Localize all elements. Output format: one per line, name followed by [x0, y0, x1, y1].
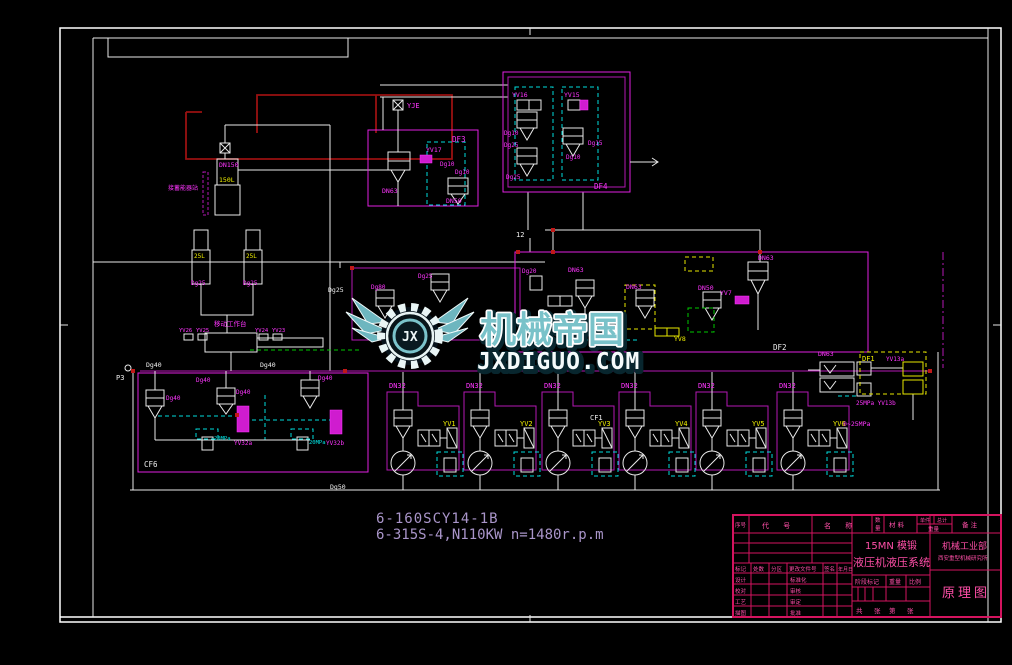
rev-mark-header: 标记 [735, 565, 747, 573]
dg50-label: Dg50 [330, 483, 346, 491]
pressure-range-label: 0~25MPa [843, 420, 870, 428]
yv24-label: YV24 [255, 328, 269, 334]
pump-unit-1: DN32 YV1 [387, 372, 463, 490]
equipment-notes: 6-160SCY14-1B 6-315S-4,N110KW n=1480r.p.… [376, 511, 604, 543]
cad-viewport[interactable]: DN150 150L 接蓄能器站 25L 25L Dg25 Dg25 12 Dg… [0, 0, 1012, 665]
p3-port-label: P3 [116, 374, 124, 382]
role-approve1: 审定 [790, 598, 802, 606]
pump-model-note: 6-160SCY14-1B [376, 511, 499, 527]
cylinder-a-label: 25L [194, 253, 205, 260]
accumulator-volume-label: 150L [219, 176, 235, 184]
dg40-line-label-a: Dg40 [146, 361, 162, 369]
yje-label: YJE [407, 102, 420, 110]
stage-weight: 重量 [889, 578, 901, 586]
df3-zone-label: DF3 [452, 135, 466, 144]
pump-unit-6: DN32 YV6 [777, 372, 853, 490]
yv26-label: YV26 [179, 328, 192, 334]
watermark-monogram: JX [402, 330, 418, 345]
df2-dn63a-label: DN63 [568, 266, 584, 274]
df2-dn63b-label: DN63 [626, 283, 642, 291]
yv13b-label: 25MPa YV13b [856, 400, 896, 407]
dg40-line-label-b: Dg40 [260, 361, 276, 369]
df4-yv15-label: YV15 [564, 91, 580, 99]
df3-yv17-label: YV17 [426, 146, 442, 154]
cad-canvas[interactable]: DN150 150L 接蓄能器站 25L 25L Dg25 Dg25 12 Dg… [0, 0, 1012, 665]
pump-unit-5: DN32 YV5 [696, 372, 772, 490]
pump3-dn32-label: DN32 [544, 382, 561, 390]
df2-dg20-label: Dg20 [522, 268, 537, 275]
rev-count-header: 处数 [753, 565, 765, 573]
product-line2: 液压机液压系统 [853, 555, 930, 569]
stage-scale: 比例 [909, 578, 921, 586]
cf6-20mpa-b: 20MPa [309, 440, 326, 446]
cf6-valve-block: Dg40 Dg40 Dg40 Dg40 YV32a YV32b 20MPa 20… [138, 371, 368, 472]
cf6-dg40-c: Dg40 [318, 375, 333, 382]
role-process: 工艺 [735, 599, 747, 606]
cf6-yv32a: YV32a [234, 440, 252, 447]
pump-unit-2: DN32 YV2 [464, 372, 540, 490]
cf6-dg40-b: Dg40 [236, 389, 251, 396]
rev-date-header: 年月日 [838, 566, 853, 573]
df3-valve-block: YJE DF3 YV17 Dg10 Dg10 DN63 DN50 [368, 85, 508, 206]
yv13a-label: YV13a [886, 356, 904, 363]
pump-unit-3: DN32 YV3 [542, 372, 618, 490]
title-block: 序号 代 号 名 称 数 量 材 料 单件 总计 重量 备 注 标记 处数 分区… [733, 515, 1001, 617]
df1-zone-label: DF1 [862, 355, 875, 363]
bom-qty-header-1: 数 [875, 516, 881, 524]
accumulator-station-note: 接蓄能器站 [168, 184, 198, 192]
cv-dg80-label: Dg80 [371, 284, 386, 291]
org-line1: 机械工业部 [942, 540, 987, 552]
df2-dn50-label: DN50 [698, 284, 714, 292]
watermark-domain: JXDIGUO.COM [477, 349, 640, 375]
cylinder-a-port-label: Dg25 [191, 280, 206, 287]
watermark: JX 机械帝国 机械帝国 机械帝国 JXDIGUO.COM JXDIGUO.CO… [346, 298, 642, 377]
df2-dn63c-label: DN63 [758, 254, 774, 262]
df3-dg10a-label: Dg10 [440, 161, 455, 168]
pump-unit-4: DN32 YV4 [619, 372, 695, 490]
role-approve2: 批准 [790, 609, 802, 617]
pump5-dn32-label: DN32 [698, 382, 715, 390]
bom-note-header: 备 注 [962, 520, 978, 529]
right-filter-block: DN63 DF1 YV13a 25MPa YV13b 0~25MPa [808, 350, 926, 428]
pump4-yv-label: YV4 [675, 420, 688, 428]
cf1-zone-label: CF1 [590, 414, 603, 422]
org-line2: 西安重型机械研究所 [938, 554, 988, 562]
df4-yv16-label: YV16 [512, 91, 528, 99]
drawing-title: 原理图 [942, 586, 990, 601]
rev-zone-header: 分区 [771, 565, 783, 573]
sheet-di: 第 [889, 606, 896, 615]
watermark-logo: JX [346, 298, 474, 365]
df4-dg25b-label: Dg25 [506, 174, 521, 181]
yv25-label: YV25 [196, 328, 209, 334]
role-trace: 描图 [735, 609, 747, 617]
bom-unit-header: 单件 [920, 517, 930, 524]
role-design: 设计 [735, 576, 747, 584]
right-dn63-label: DN63 [818, 350, 834, 358]
bom-total-header: 总计 [937, 517, 947, 524]
sheet-zhang1: 张 [874, 606, 881, 615]
cv-dg25-label: Dg25 [418, 273, 433, 280]
watermark-text: 机械帝国 机械帝国 机械帝国 JXDIGUO.COM JXDIGUO.COM [477, 310, 642, 377]
pump-units: DN32 YV1 DN32 YV2 [387, 372, 853, 490]
sheet-gong: 共 [856, 606, 863, 615]
motor-model-note: 6-315S-4,N110KW n=1480r.p.m [376, 527, 604, 543]
role-check: 校对 [735, 587, 747, 595]
df2-yv7-label: YV7 [720, 289, 732, 297]
pump2-yv-label: YV2 [520, 420, 533, 428]
df3-dg10b-label: Dg10 [455, 169, 470, 176]
sheet-zhang2: 张 [907, 606, 914, 615]
rev-sign-header: 签名 [824, 565, 835, 573]
product-line1: 15MN 模锻 [865, 539, 917, 552]
df4-dg15-label: Dg15 [588, 140, 603, 147]
accumulator-size-label: DN150 [219, 161, 239, 169]
df2-zone-label: DF2 [773, 343, 787, 352]
pump1-yv-label: YV1 [443, 420, 456, 428]
worktable-cylinder: 移动工作台 YV26 YV25 YV24 YV23 [179, 319, 323, 371]
df4-dg10b-label: Dg10 [566, 154, 581, 161]
cf6-dg40-a: Dg40 [166, 395, 181, 402]
bom-no-header: 序号 [735, 521, 747, 529]
cf6-yv32b: YV32b [326, 440, 344, 447]
bom-name-header: 名 称 [824, 521, 858, 530]
bom-code-header: 代 号 [762, 521, 796, 530]
cf6-zone-label: CF6 [144, 460, 158, 469]
df4-dg10a-label: Dg10 [504, 130, 519, 137]
dg25-line-label: Dg25 [328, 286, 344, 294]
pump6-dn32-label: DN32 [779, 382, 796, 390]
node-12-label: 12 [516, 231, 524, 239]
cf6-dg40-d: Dg40 [196, 377, 211, 384]
yv23-label: YV23 [272, 328, 285, 334]
pump2-dn32-label: DN32 [466, 382, 483, 390]
watermark-brand: 机械帝国 [480, 310, 624, 351]
df4-zone-label: DF4 [594, 182, 608, 191]
role-standard: 标准化 [790, 576, 807, 584]
worktable-note: 移动工作台 [214, 319, 247, 328]
stage-header: 阶段标记 [855, 578, 879, 586]
df4-dg25a-label: Dg25 [504, 142, 519, 149]
df4-valve-block: YV16 YV15 Dg10 Dg25 Dg15 Dg10 Dg25 DF4 [503, 72, 658, 192]
cylinder-b-port-label: Dg25 [243, 280, 258, 287]
rev-doc-header: 更改文件号 [789, 565, 817, 573]
df2-yv8-label: YV8 [674, 335, 686, 343]
pump4-dn32-label: DN32 [621, 382, 638, 390]
pump1-dn32-label: DN32 [389, 382, 406, 390]
pump5-yv-label: YV5 [752, 420, 765, 428]
role-audit: 审核 [790, 587, 802, 595]
df3-dn50-label: DN50 [446, 197, 462, 205]
bom-weight-header: 重量 [928, 525, 940, 533]
cylinder-b-label: 25L [246, 253, 257, 260]
cf6-20mpa-a: 20MPa [214, 436, 231, 442]
df3-dn63-label: DN63 [382, 187, 398, 195]
bom-qty-header-2: 量 [875, 525, 881, 532]
bom-mat-header: 材 料 [889, 520, 905, 529]
